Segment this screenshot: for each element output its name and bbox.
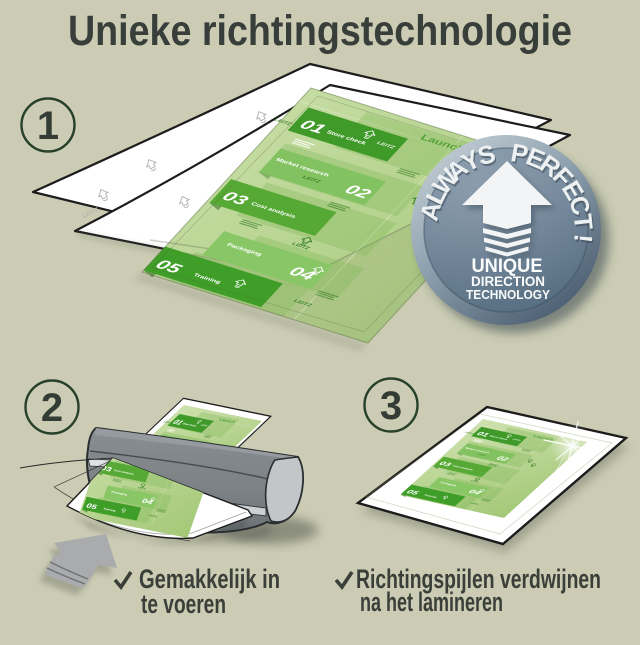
svg-text:3: 3 — [380, 384, 402, 428]
svg-text:TECHNOLOGY: TECHNOLOGY — [466, 287, 550, 302]
svg-text:Unieke richtingstechnologie: Unieke richtingstechnologie — [68, 7, 572, 55]
svg-text:te voeren: te voeren — [141, 589, 226, 619]
svg-text:2: 2 — [41, 386, 63, 430]
svg-text:na het lamineren: na het lamineren — [360, 587, 503, 617]
svg-text:1: 1 — [37, 104, 59, 148]
